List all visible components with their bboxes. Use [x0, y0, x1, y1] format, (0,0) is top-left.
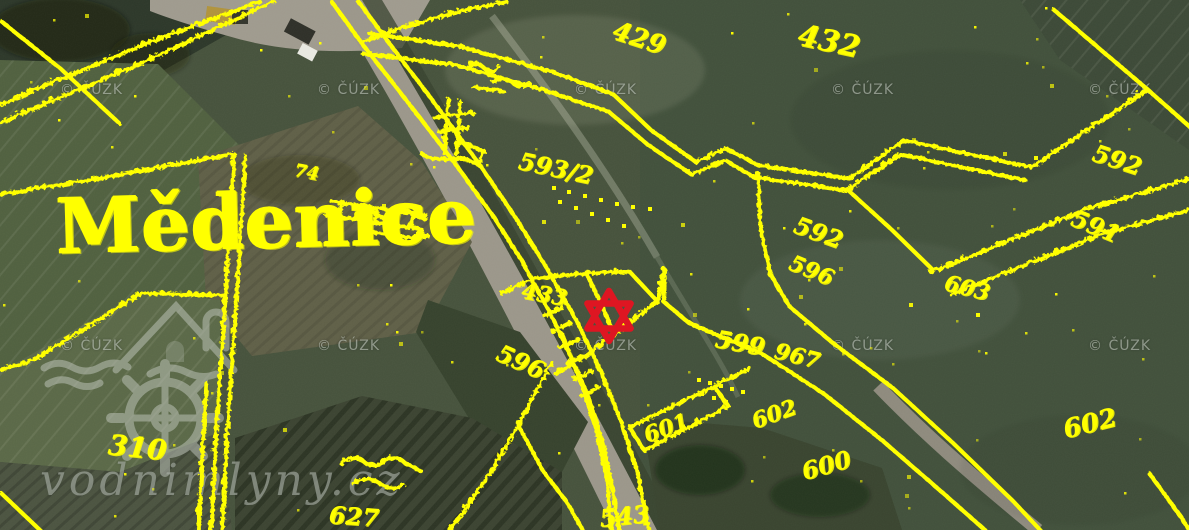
- parcel-number-label: 429: [609, 16, 670, 61]
- parcel-number-label: 599: [713, 324, 767, 361]
- parcel-number-label: 310: [107, 428, 169, 467]
- parcel-number-label: 600: [798, 444, 854, 486]
- parcel-number-label: 543: [598, 499, 651, 530]
- parcel-number-label: 592: [790, 210, 847, 254]
- place-name-label: Mědenice: [55, 171, 478, 271]
- parcel-number-label: 596: [492, 338, 550, 385]
- parcel-number-label: 602: [748, 394, 800, 434]
- parcel-number-label: 967: [772, 338, 823, 374]
- parcel-number-label: 601: [640, 408, 692, 448]
- parcel-number-label: 627: [328, 500, 380, 530]
- parcel-number-label: 596: [785, 250, 837, 291]
- parcel-number-label: 591: [1067, 203, 1124, 249]
- parcel-number-label: 432: [795, 18, 864, 65]
- parcel-number-label: 433: [519, 278, 569, 312]
- parcel-number-label: 603: [942, 270, 993, 306]
- parcel-number-label: 592: [1089, 138, 1146, 181]
- cadastral-map-canvas[interactable]: © ČÚZK © ČÚZK © ČÚZK © ČÚZK © ČÚZK © ČÚZ…: [0, 0, 1189, 530]
- parcel-number-label: 602: [1060, 403, 1120, 445]
- parcel-number-label: 593/2: [516, 146, 596, 190]
